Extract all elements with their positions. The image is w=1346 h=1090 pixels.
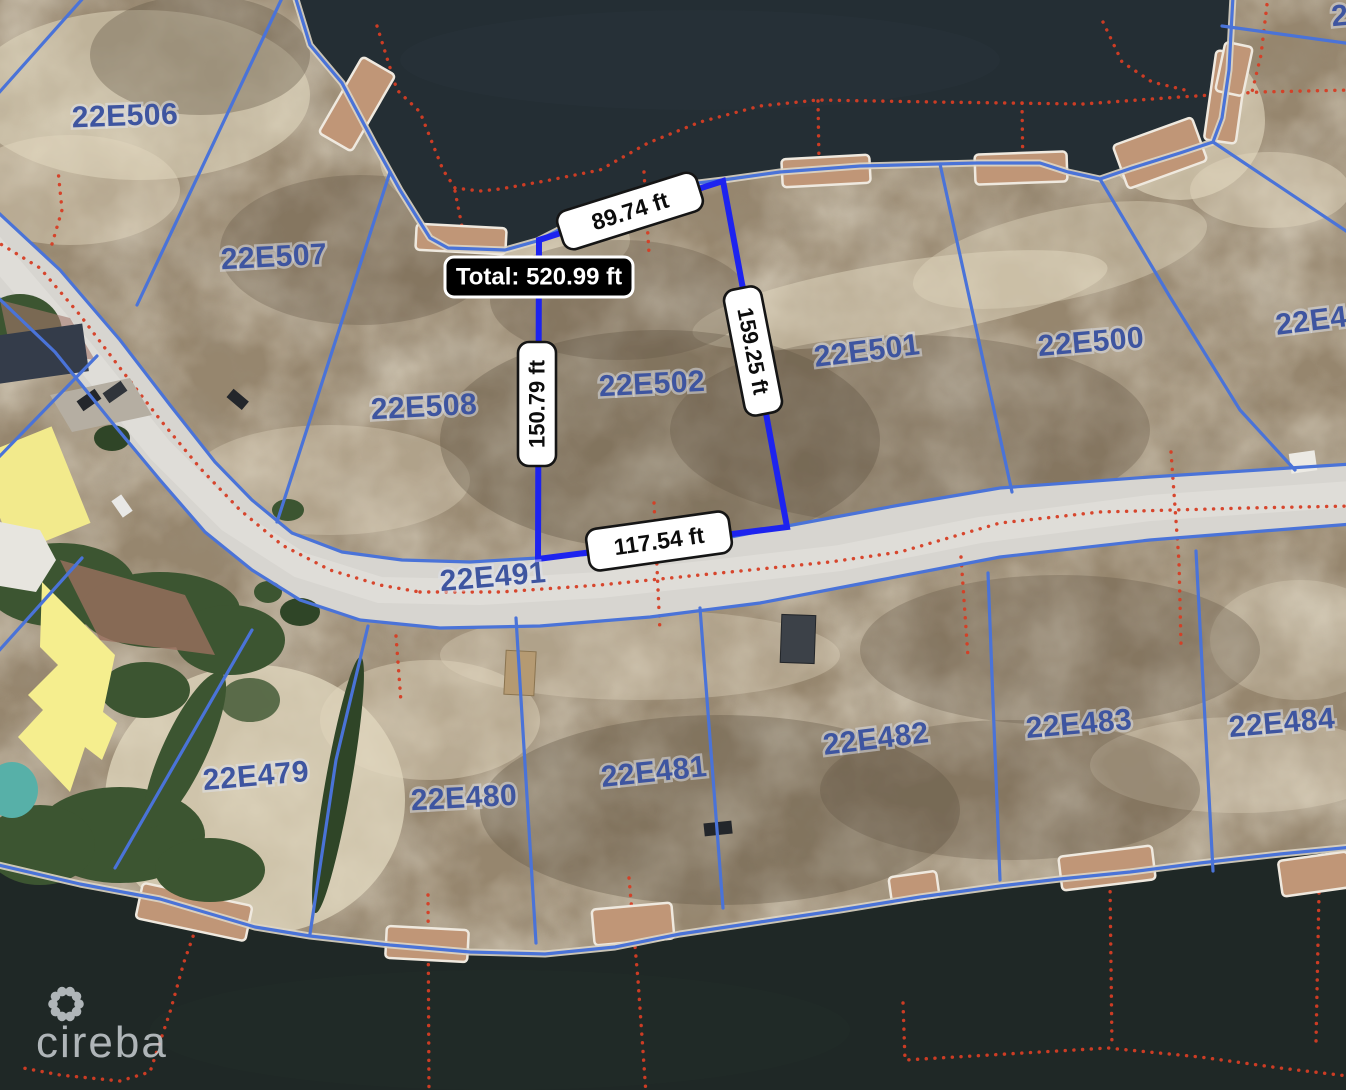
parcel-label-508: 22E508 bbox=[370, 388, 478, 427]
measurement-badge-left: 150.79 ft bbox=[518, 342, 556, 466]
map-viewport[interactable]: 22E506 22E507 22E508 22E502 22E501 22E50… bbox=[0, 0, 1346, 1090]
watermark-text: cireba bbox=[36, 1018, 168, 1067]
parcel-label-top-right-partial: 2 bbox=[1330, 0, 1346, 33]
measurement-total-badge: Total: 520.99 ft bbox=[445, 257, 633, 297]
parcel-label-502: 22E502 bbox=[598, 365, 706, 404]
parcel-label-506: 22E506 bbox=[71, 98, 179, 135]
measurement-total-value: Total: 520.99 ft bbox=[456, 264, 622, 291]
shed-dark bbox=[780, 614, 816, 663]
measurement-value-left: 150.79 ft bbox=[525, 359, 550, 448]
parcel-label-507: 22E507 bbox=[220, 238, 328, 277]
aerial-map-canvas[interactable]: 22E506 22E507 22E508 22E502 22E501 22E50… bbox=[0, 0, 1346, 1090]
parcel-label-480: 22E480 bbox=[410, 779, 518, 818]
